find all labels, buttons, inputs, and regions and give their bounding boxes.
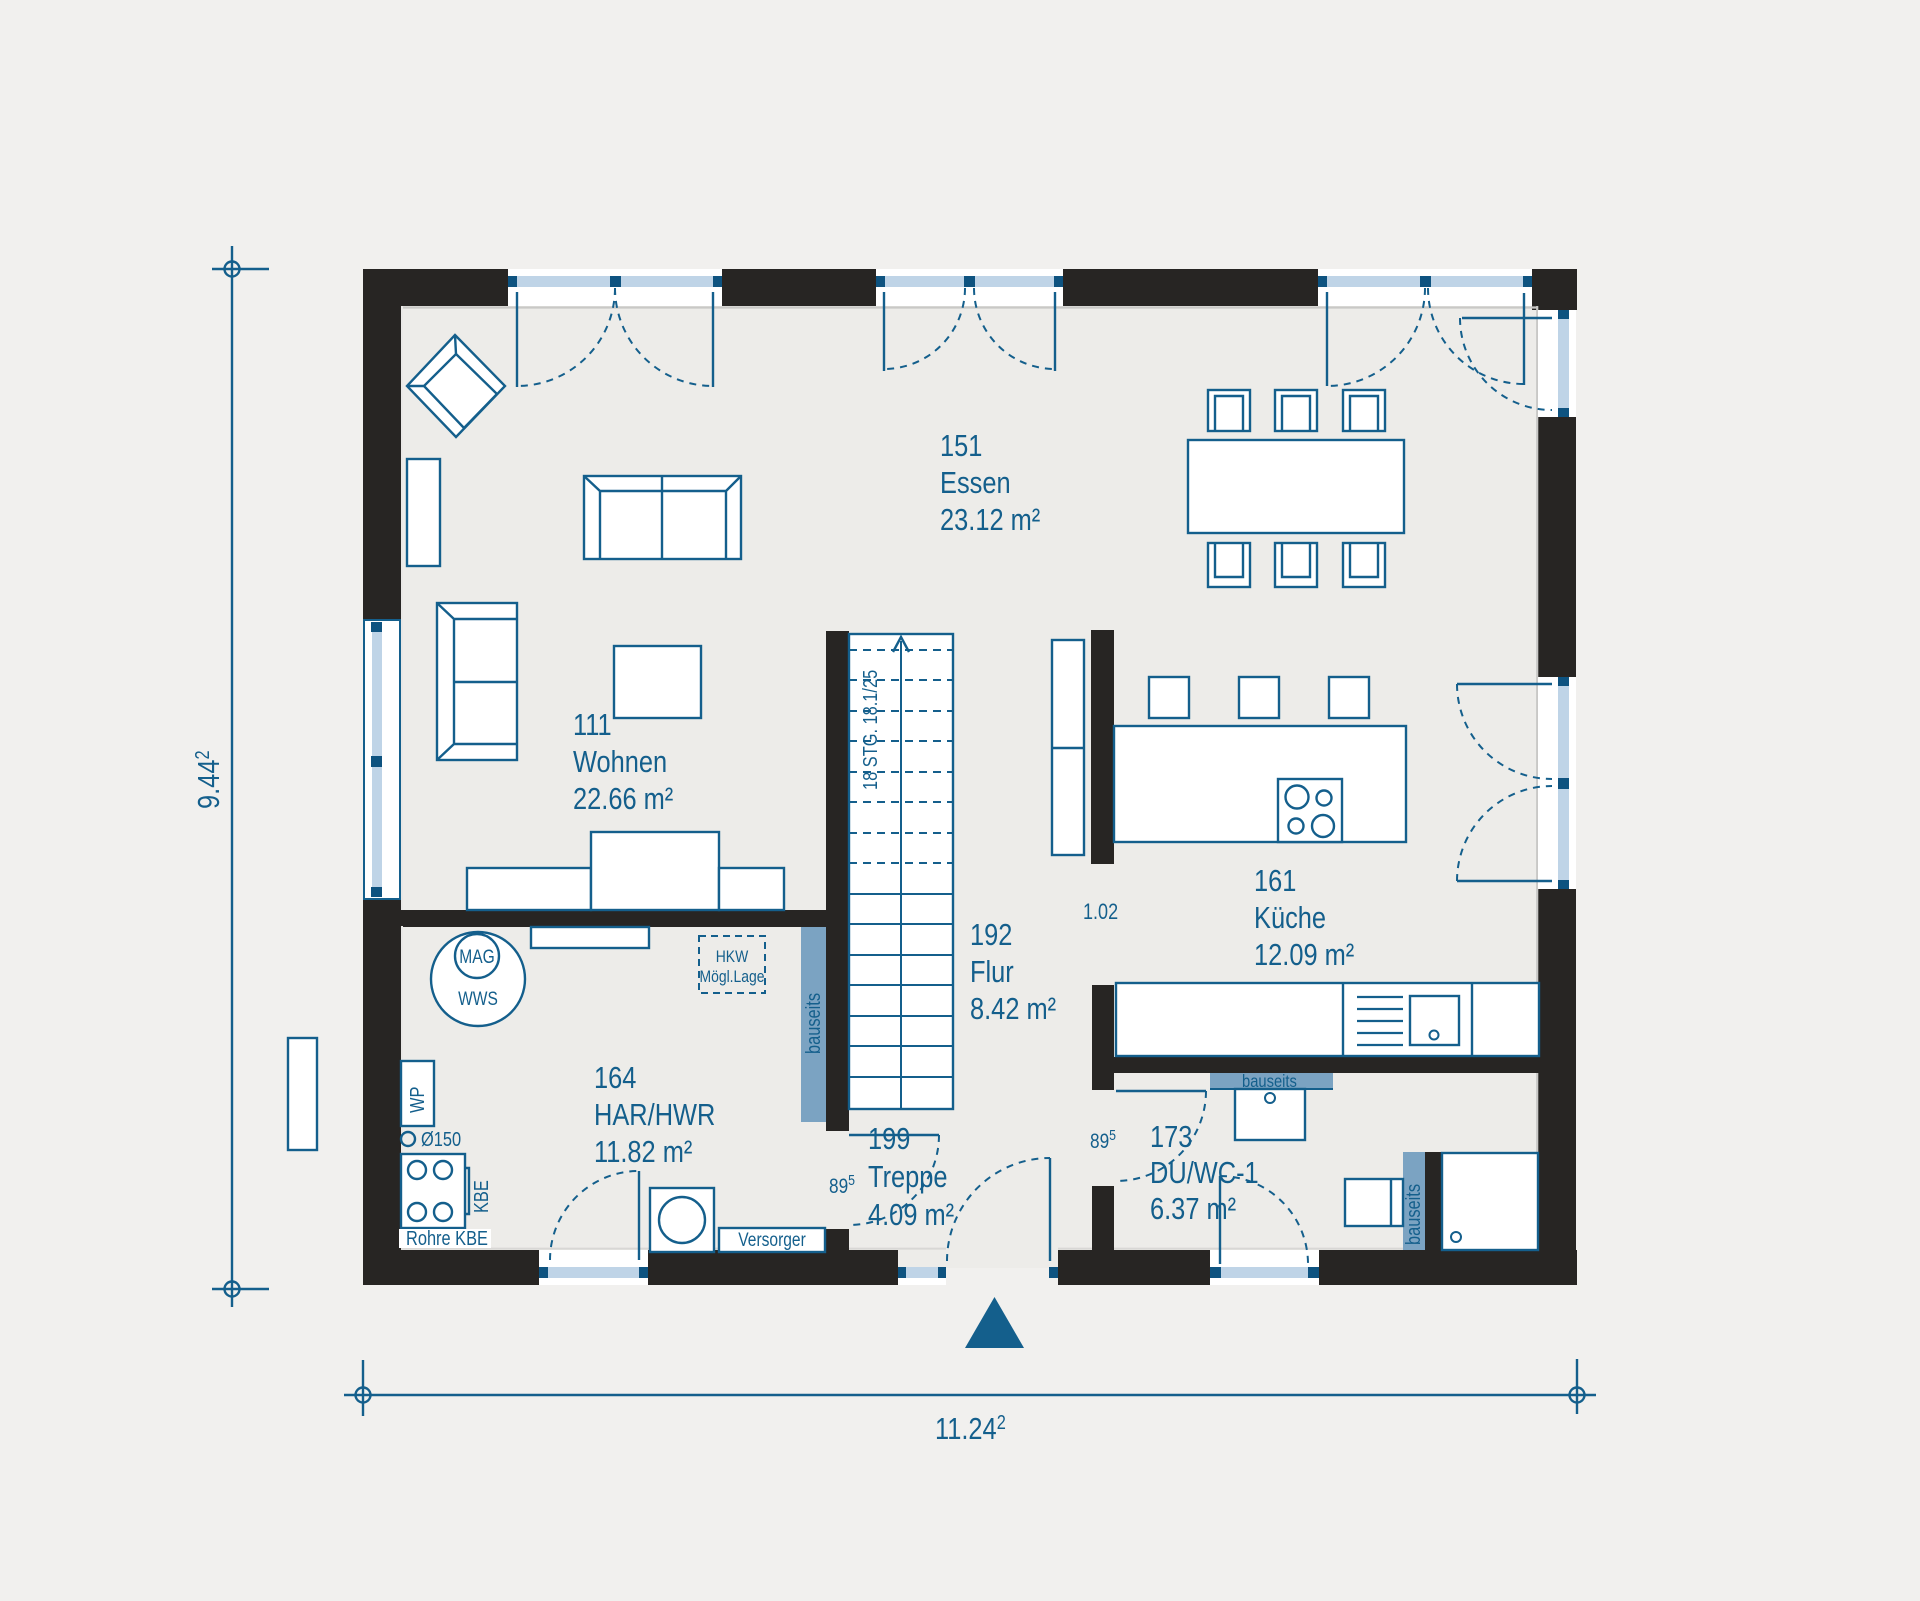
svg-text:161: 161 <box>1254 864 1296 899</box>
svg-text:151: 151 <box>940 429 982 464</box>
svg-text:Rohre KBE: Rohre KBE <box>406 1226 488 1249</box>
svg-text:MAG: MAG <box>459 946 494 968</box>
svg-text:Flur: Flur <box>970 955 1014 990</box>
svg-text:bauseits: bauseits <box>1401 1184 1424 1245</box>
svg-text:HAR/HWR: HAR/HWR <box>594 1098 715 1133</box>
svg-text:18 STG. 18.1/25: 18 STG. 18.1/25 <box>858 670 881 790</box>
svg-text:Wohnen: Wohnen <box>573 745 667 780</box>
svg-text:KBE: KBE <box>469 1180 492 1213</box>
svg-text:111: 111 <box>573 708 612 743</box>
svg-text:DU/WC-1: DU/WC-1 <box>1150 1156 1259 1191</box>
svg-text:WWS: WWS <box>458 988 498 1010</box>
svg-text:Mögl.Lage: Mögl.Lage <box>699 968 764 987</box>
svg-text:HKW: HKW <box>716 948 749 967</box>
svg-text:164: 164 <box>594 1061 636 1096</box>
svg-text:Essen: Essen <box>940 466 1011 501</box>
svg-text:11.242: 11.242 <box>935 1410 1006 1446</box>
svg-text:Versorger: Versorger <box>738 1229 806 1251</box>
svg-text:8.42 m²: 8.42 m² <box>970 992 1056 1027</box>
svg-text:22.66 m²: 22.66 m² <box>573 782 673 817</box>
svg-text:4.09 m²: 4.09 m² <box>868 1198 954 1233</box>
svg-text:Küche: Küche <box>1254 901 1326 936</box>
svg-text:6.37 m²: 6.37 m² <box>1150 1192 1236 1227</box>
svg-text:11.82 m²: 11.82 m² <box>594 1135 692 1170</box>
svg-text:bauseits: bauseits <box>801 993 824 1054</box>
svg-text:23.12 m²: 23.12 m² <box>940 503 1040 538</box>
svg-text:173: 173 <box>1150 1120 1192 1155</box>
svg-text:Ø150: Ø150 <box>421 1127 461 1150</box>
svg-text:Treppe: Treppe <box>868 1160 948 1195</box>
svg-text:192: 192 <box>970 918 1012 953</box>
svg-text:12.09 m²: 12.09 m² <box>1254 938 1354 973</box>
svg-text:1.02: 1.02 <box>1083 900 1118 924</box>
svg-text:199: 199 <box>868 1122 910 1157</box>
svg-text:WP: WP <box>405 1087 428 1113</box>
